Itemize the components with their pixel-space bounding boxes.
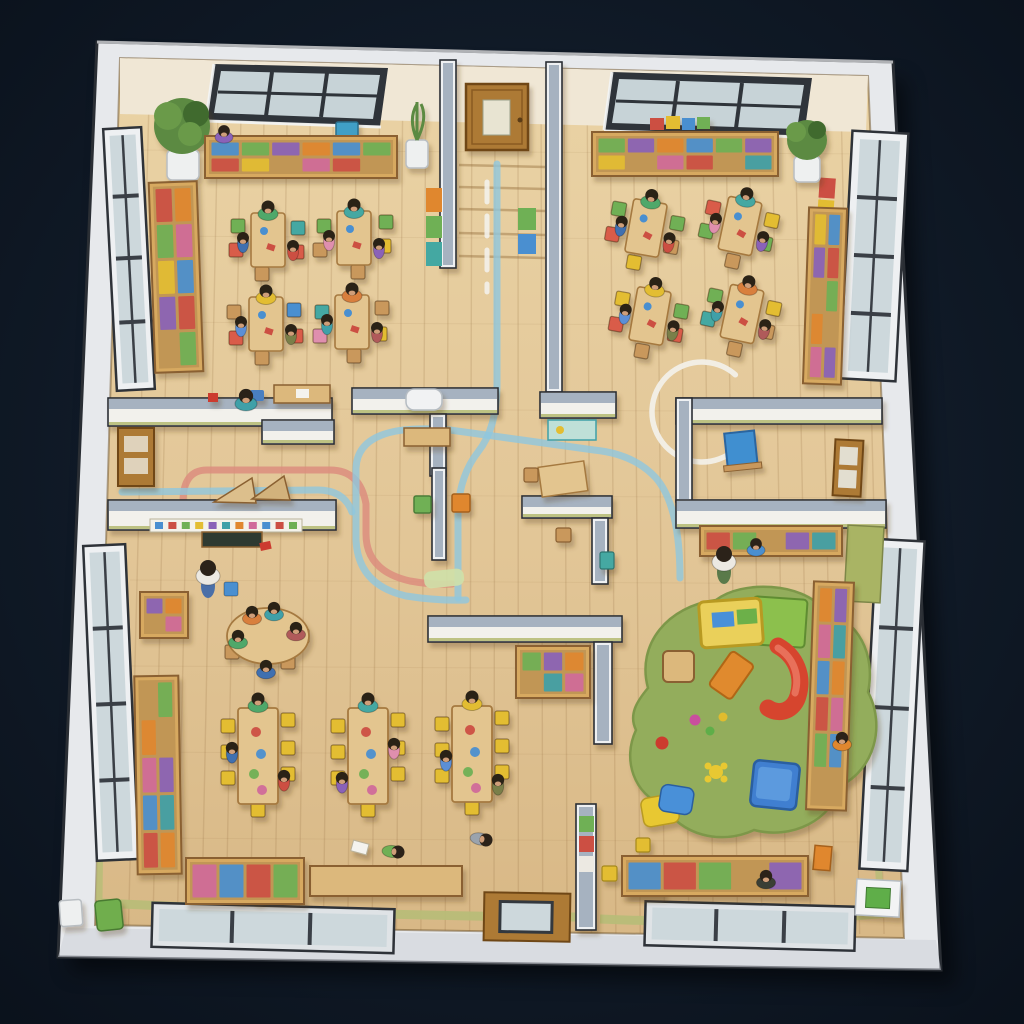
child-face: [326, 237, 332, 241]
alphabet-frieze: [150, 519, 302, 532]
wall-baseboard: [263, 440, 333, 443]
wall-horizontal: [540, 392, 616, 418]
adult-head: [716, 546, 732, 562]
nook-door: [833, 439, 864, 496]
wall-vertical: [546, 62, 562, 392]
tall-toy-shelf-room-d: [806, 581, 854, 810]
shelf-item: [827, 248, 839, 279]
shelf-item: [242, 159, 269, 172]
kid-chair: [255, 351, 269, 365]
child-figure: [336, 772, 348, 793]
child-face: [263, 293, 270, 298]
shelf-item: [363, 143, 390, 156]
wall-vertical: [592, 518, 608, 584]
shelf-item: [828, 215, 840, 246]
white-box-outside: [59, 899, 83, 926]
sea-poster: [548, 420, 596, 440]
shelf-item: [716, 139, 742, 153]
yellow-chair: [435, 717, 449, 731]
wall-shelf-room-a: [205, 136, 397, 178]
child-face: [376, 245, 382, 249]
table-item: [257, 785, 267, 795]
shelf-item: [657, 139, 683, 153]
wall-vertical: [594, 642, 612, 744]
yellow-chair-d2: [636, 838, 650, 852]
child-face: [339, 780, 345, 785]
frieze-letter-block: [209, 522, 217, 529]
child-face: [265, 209, 272, 214]
blue-cushion: [658, 784, 695, 816]
kid-chair: [347, 349, 361, 363]
shelf-item: [833, 625, 846, 659]
adult-head: [200, 560, 216, 576]
blue-chair: [224, 582, 238, 596]
shelf-item: [565, 653, 583, 671]
wall-cap: [677, 399, 881, 409]
shelf-item: [817, 661, 830, 695]
table-item: [346, 225, 354, 233]
table-item: [463, 767, 473, 777]
shelf-item: [815, 697, 828, 731]
wall-cap: [443, 63, 453, 265]
table-item: [256, 749, 266, 759]
shelf-item: [212, 143, 239, 156]
yellow-chair: [331, 719, 345, 733]
shelf-item: [303, 159, 330, 172]
shelf-item: [629, 863, 661, 890]
yellow-chair: [281, 713, 295, 727]
wall-shelf-room-b: [592, 132, 778, 176]
counter-bench: [404, 428, 450, 446]
activity-table: [251, 213, 285, 267]
kid-chair: [291, 221, 305, 235]
shelf-item: [664, 863, 696, 890]
white-unit-corner: [855, 879, 901, 917]
green-bag: [95, 899, 124, 932]
shelf-item: [178, 296, 195, 330]
shelf-item: [812, 533, 835, 550]
tall-bookshelf-room-c: [134, 676, 181, 875]
shelf-item: [212, 159, 239, 172]
wall-cap: [263, 421, 333, 431]
child-figure: [235, 316, 247, 337]
kid-chair: [726, 341, 743, 358]
kid-chair: [766, 300, 783, 317]
orange-kid-chair: [452, 494, 470, 512]
child-face: [469, 699, 476, 704]
table-item: [344, 309, 352, 317]
frieze-letter-block: [276, 522, 284, 529]
poster-teal: [426, 242, 442, 266]
shelf-item: [274, 865, 298, 898]
wall-horizontal: [522, 496, 612, 518]
table-item: [465, 725, 475, 735]
wooden-stool: [663, 651, 694, 682]
shelf-item: [147, 599, 163, 614]
frieze-letter-block: [249, 522, 257, 529]
yellow-chair: [465, 801, 479, 815]
frieze-letter-block: [182, 522, 190, 529]
kid-chair: [669, 215, 685, 231]
toys-on-shelf-b: [650, 116, 710, 130]
child-face: [255, 701, 262, 706]
wall-baseboard: [429, 638, 621, 641]
wall-vertical: [432, 468, 446, 560]
shelf-item: [144, 833, 159, 868]
yellow-chair: [495, 739, 509, 753]
kid-chair: [764, 212, 781, 229]
center-cabinet: [516, 646, 590, 698]
child-face: [271, 610, 277, 615]
wall-horizontal: [676, 398, 882, 424]
wall-vertical: [440, 60, 456, 268]
shelf-item: [174, 188, 191, 222]
child-face: [374, 329, 380, 333]
child-face: [238, 323, 244, 327]
shelf-item: [159, 757, 174, 792]
yellow-chair: [221, 719, 235, 733]
window-bottom-left: [151, 903, 394, 953]
child-face: [281, 778, 287, 783]
poster-low-red: [579, 836, 594, 852]
child-face: [242, 398, 249, 403]
toy-bin-box: [186, 858, 304, 904]
bottom-entry-hatch: [484, 892, 571, 941]
yellow-chair: [495, 711, 509, 725]
shelf-item: [599, 139, 625, 153]
shelf-item: [599, 156, 625, 170]
shelf-item: [819, 588, 832, 622]
kid-chair: [673, 303, 689, 319]
child-face: [753, 545, 759, 549]
counter-sink: [406, 389, 442, 410]
table-item: [470, 747, 480, 757]
wall-cap: [523, 497, 611, 507]
table-item: [367, 785, 377, 795]
slide-step-green: [737, 608, 758, 624]
small-red-toy: [208, 393, 218, 402]
shelf-item: [826, 281, 838, 312]
yellow-chair-d1: [602, 866, 617, 881]
yellow-chair: [221, 771, 235, 785]
shelf-item: [699, 863, 731, 890]
shelf-item: [814, 733, 827, 767]
window-bottom-right: [644, 901, 855, 950]
yellow-chair: [361, 803, 375, 817]
child-figure: [492, 774, 504, 795]
left-wall-door: [118, 428, 154, 486]
kid-chair: [611, 201, 627, 217]
child-face: [235, 638, 241, 643]
child-face: [495, 782, 501, 787]
child-face: [365, 701, 372, 706]
shelf-item: [179, 332, 196, 366]
shelf-item: [834, 589, 847, 623]
shelf-item: [158, 682, 173, 717]
red-ball: [656, 737, 669, 750]
wood-chair-1: [524, 468, 538, 482]
frieze-letter-block: [262, 522, 270, 529]
sea-poster-sun: [556, 426, 564, 434]
green-kid-chair: [414, 496, 431, 513]
child-face: [229, 750, 235, 755]
shelf-item: [687, 139, 713, 153]
table-item: [251, 727, 261, 737]
yellow-chair: [331, 745, 345, 759]
shelf-item: [786, 533, 809, 550]
kid-chair: [375, 301, 389, 315]
teal-toy-seat: [600, 552, 614, 569]
shelf-item: [160, 795, 175, 830]
shelf-item: [193, 865, 217, 898]
child-figure: [226, 742, 238, 763]
wall-cap: [435, 471, 443, 557]
child-face: [324, 321, 330, 325]
child-figure: [373, 238, 385, 259]
small-shelf-room-c: [140, 592, 188, 638]
child-face: [240, 239, 246, 243]
kid-chair: [351, 265, 365, 279]
wall-cap: [549, 65, 559, 389]
wall-cap: [597, 645, 609, 741]
child-face: [391, 746, 397, 751]
wall-horizontal: [262, 420, 334, 444]
shelf-item: [810, 347, 822, 378]
shelf-item: [824, 347, 836, 378]
child-figure: [321, 314, 333, 335]
entry-door: [466, 84, 528, 150]
shelf-item: [832, 661, 845, 695]
kid-chair: [634, 343, 650, 359]
skylight-left: [206, 64, 388, 127]
child-face: [263, 668, 269, 673]
shelf-item: [628, 139, 654, 153]
table-item: [249, 769, 259, 779]
child-figure: [388, 738, 400, 759]
shelf-item: [565, 674, 583, 692]
wall-horizontal: [428, 616, 622, 642]
wall-baseboard: [677, 420, 881, 423]
wall-vertical: [676, 398, 692, 502]
shelf-item: [158, 261, 175, 295]
child-face: [288, 331, 294, 335]
tall-bookshelf-room-b: [803, 207, 847, 384]
kid-chair: [287, 303, 301, 317]
poster-green: [426, 216, 442, 238]
frieze-letter-block: [195, 522, 203, 529]
child-figure: [278, 770, 290, 791]
frieze-letter-block: [155, 522, 163, 529]
kid-chair: [231, 219, 245, 233]
window-right-top: [839, 131, 908, 382]
child-face: [763, 878, 769, 883]
child-figure: [285, 324, 297, 345]
activity-table: [249, 297, 283, 351]
chalkboard: [202, 532, 262, 547]
shelf-item: [303, 143, 330, 156]
shelf-item: [155, 189, 172, 223]
shelf-item: [247, 865, 271, 898]
shelf-item: [142, 720, 157, 755]
shelf-item: [142, 758, 157, 793]
poster-low-green: [579, 816, 594, 832]
table-item: [361, 727, 371, 737]
table-item: [359, 769, 369, 779]
shelf-item: [177, 260, 194, 294]
kid-chair: [255, 267, 269, 281]
poster-low-white: [579, 856, 594, 872]
wall-horizontal: [676, 500, 886, 528]
toy-bench-room-d: [622, 856, 808, 896]
frieze-letter-block: [168, 522, 176, 529]
poster-blue: [518, 234, 536, 254]
shelf-item: [818, 624, 831, 658]
wall-cap: [541, 393, 615, 403]
shelf-item: [745, 156, 771, 170]
shelf-item: [745, 139, 771, 153]
shelf-item: [242, 143, 269, 156]
frieze-letter-block: [222, 522, 230, 529]
shelf-item: [830, 698, 843, 732]
child-figure: [323, 230, 335, 251]
child-figure: [371, 322, 383, 343]
door-poster: [483, 100, 510, 135]
shelf-item: [143, 795, 158, 830]
frieze-letter-block: [235, 522, 243, 529]
yellow-chair: [391, 713, 405, 727]
wall-baseboard: [541, 414, 615, 417]
child-figure: [440, 750, 452, 771]
table-item: [471, 783, 481, 793]
table-item: [366, 749, 376, 759]
blue-cube-seat-top: [755, 766, 792, 801]
child-face: [839, 740, 845, 745]
poster-green-2: [518, 208, 536, 230]
wall-cap: [429, 617, 621, 627]
shelf-item: [544, 653, 562, 671]
shelf-item: [176, 224, 193, 258]
shelf-item: [657, 156, 683, 170]
shelf-item: [544, 674, 562, 692]
nook-table: [538, 461, 588, 497]
shelf-item: [220, 865, 244, 898]
yellow-chair: [391, 767, 405, 781]
slide-step-blue: [712, 611, 735, 627]
low-wooden-bench: [310, 866, 462, 896]
wall-cap: [677, 501, 885, 511]
paper-sheet: [296, 389, 309, 398]
shelf-item: [333, 143, 360, 156]
shelf-item: [523, 653, 541, 671]
child-face: [249, 614, 255, 619]
shelf-item: [159, 297, 176, 331]
wall-cap: [679, 401, 689, 499]
door-knob: [518, 118, 523, 123]
kid-chair: [724, 253, 741, 270]
shelf-item: [166, 599, 182, 614]
shelf-item: [161, 833, 176, 868]
shelf-item: [157, 225, 174, 259]
table-item: [260, 227, 268, 235]
shelf-item: [166, 617, 182, 632]
child-face: [443, 758, 449, 763]
shelf-item: [333, 159, 360, 172]
kid-chair: [379, 215, 393, 229]
child-face: [349, 291, 356, 296]
orange-bin: [813, 845, 832, 870]
child-figure: [237, 232, 249, 253]
screenshot-canvas: [0, 0, 1024, 1024]
activity-table: [335, 295, 369, 349]
frieze-letter-block: [289, 522, 297, 529]
wall-baseboard: [523, 514, 611, 517]
tall-bookshelf-room-a: [149, 181, 204, 373]
activity-table: [337, 211, 371, 265]
wood-chair-2: [556, 528, 571, 542]
child-face: [293, 630, 299, 635]
child-face: [290, 247, 296, 251]
yellow-chair: [281, 741, 295, 755]
table-item: [258, 311, 266, 319]
yellow-chair: [251, 803, 265, 817]
shelf-item: [272, 143, 299, 156]
kid-chair: [626, 254, 642, 270]
shelf-item: [813, 247, 825, 278]
shelf-item: [687, 156, 713, 170]
poster-orange: [426, 188, 442, 212]
kindergarten-floorplan-illustration: [0, 0, 1024, 1024]
shelf-item: [814, 214, 826, 245]
wall-cap: [595, 521, 605, 581]
child-figure: [287, 240, 299, 261]
shelf-item: [811, 314, 823, 345]
child-face: [221, 132, 227, 136]
child-face: [351, 207, 358, 212]
